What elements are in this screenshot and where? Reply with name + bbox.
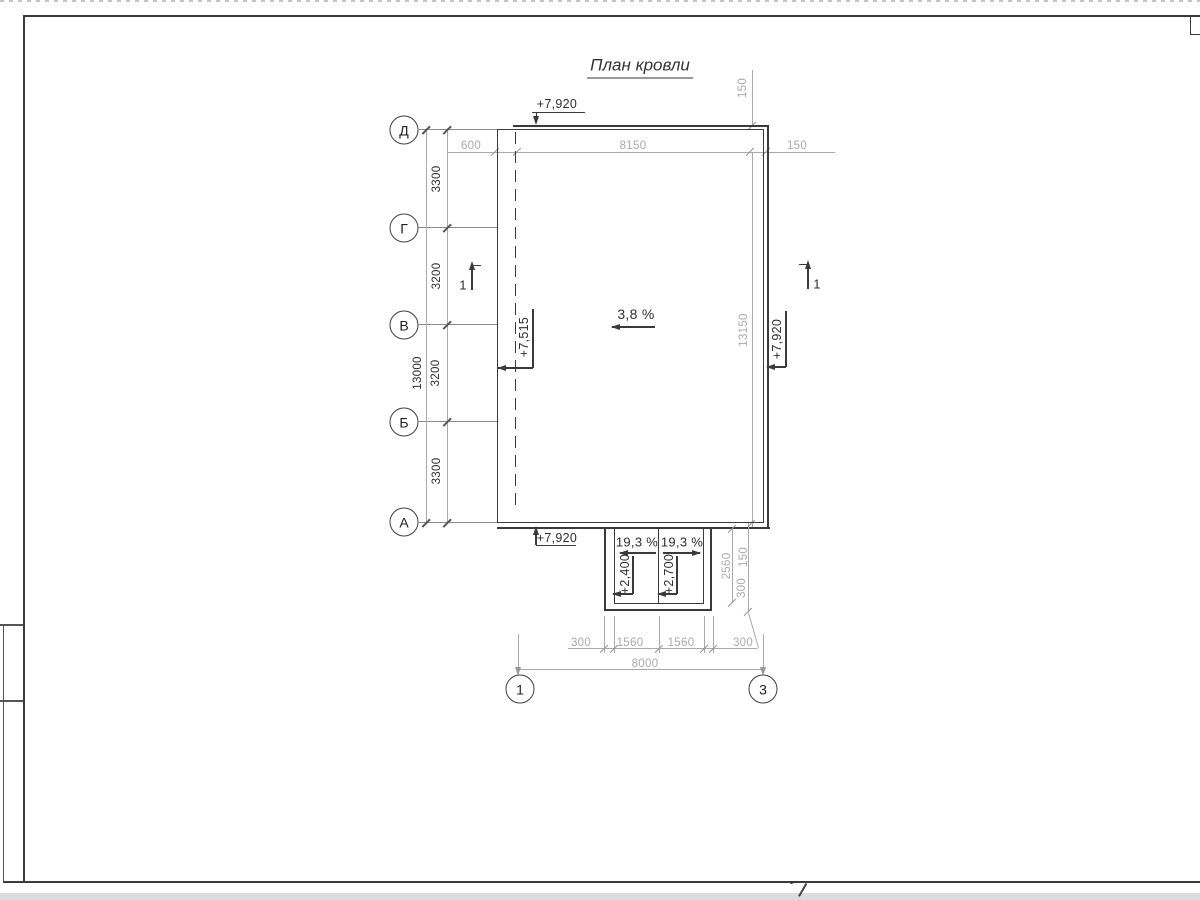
drawing-title: План кровли xyxy=(587,56,693,79)
arrow-up-icon xyxy=(533,526,539,535)
arrow-down-icon xyxy=(533,116,539,125)
dim-label-bottom-1560-a: 1560 xyxy=(617,637,644,649)
left-margin-tick-lower xyxy=(0,700,23,701)
bottom-edge-dot-mark xyxy=(790,881,793,884)
arrow-left-icon xyxy=(766,364,775,370)
dim-label-left-3300-a: 3300 xyxy=(431,166,443,193)
arrow-left-icon xyxy=(657,591,666,597)
arrow-right-icon xyxy=(692,550,701,556)
slope-label-canopy-right: 19,3 % xyxy=(661,535,703,550)
left-margin-tick-upper xyxy=(0,624,23,625)
axis-label-a: А xyxy=(399,514,408,530)
axis-bubble-d: Д xyxy=(390,116,419,145)
dim-label-bottom-total: 8000 xyxy=(632,658,659,670)
axis-bubble-b: Б xyxy=(390,408,419,437)
elevation-label-roof-right: +7,920 xyxy=(770,319,784,359)
axis-line-d xyxy=(418,129,497,130)
elevation-leader-v-canopy-a xyxy=(632,556,633,594)
axis-line-a xyxy=(418,522,497,523)
dim-label-top-150: 150 xyxy=(787,140,807,152)
axis-bubble-3: 3 xyxy=(749,675,778,704)
slope-label-canopy-left: 19,3 % xyxy=(616,535,658,550)
axis-bubble-v: В xyxy=(390,311,419,340)
elevation-label-canopy-a: +2,400 xyxy=(618,554,632,594)
frame-corner-notch-horizontal xyxy=(1190,34,1200,35)
frame-border-top xyxy=(23,15,1200,17)
dim-label-left-3200-a: 3200 xyxy=(431,263,443,290)
dim-label-left-total: 13000 xyxy=(412,356,424,389)
dim-label-left-3200-b: 3200 xyxy=(430,360,442,387)
hidden-wall-dashed-line xyxy=(515,132,517,510)
sheet-top-perforation xyxy=(0,0,1200,2)
dim-label-bottom-300-b: 300 xyxy=(733,637,753,649)
left-margin-line xyxy=(3,625,4,881)
dim-label-canopy-150: 150 xyxy=(738,547,750,567)
axis-bubble-1: 1 xyxy=(506,675,535,704)
dim-label-canopy-2560: 2560 xyxy=(721,553,733,580)
axis-label-b: Б xyxy=(399,414,408,430)
slope-label-main: 3,8 % xyxy=(617,306,654,322)
frame-border-left xyxy=(23,15,25,882)
elevation-underline-roof-bottom xyxy=(536,545,576,546)
arrow-left-icon xyxy=(611,324,620,330)
dim-line-left-chain xyxy=(447,130,448,523)
elevation-underline-roof-top xyxy=(532,112,585,113)
section-mark-left-bar xyxy=(472,265,481,267)
axis-label-g: Г xyxy=(400,220,408,236)
elevation-leader-v-canopy-b xyxy=(676,556,677,594)
axis-label-3: 3 xyxy=(759,681,767,697)
dim-label-bottom-1560-b: 1560 xyxy=(668,637,695,649)
dim-line-left-total xyxy=(426,130,427,523)
section-mark-right-bar xyxy=(799,264,808,266)
arrow-left-icon xyxy=(612,591,621,597)
dim-line-canopy-150-300 xyxy=(748,523,749,612)
elevation-label-roof-bottom: +7,920 xyxy=(537,531,577,545)
axis-line-g xyxy=(418,227,497,228)
frame-border-bottom xyxy=(3,881,1200,883)
drawing-sheet: План кровли Д Г В Б А 3300 3200 3200 330… xyxy=(0,0,1200,900)
dim-label-left-3300-b: 3300 xyxy=(431,458,443,485)
axis-line-b xyxy=(418,421,497,422)
section-label-left: 1 xyxy=(459,278,467,293)
axis-label-d: Д xyxy=(399,122,408,138)
axis-bubble-g: Г xyxy=(390,214,419,243)
dim-label-canopy-300: 300 xyxy=(736,578,748,598)
elevation-leader-v-roof-left xyxy=(532,309,533,368)
axis-label-v: В xyxy=(399,317,408,333)
elevation-label-canopy-b: +2,700 xyxy=(662,554,676,594)
elevation-label-roof-top: +7,920 xyxy=(537,97,577,111)
elevation-leader-v-roof-right xyxy=(785,311,786,367)
section-label-right: 1 xyxy=(813,277,821,292)
axis-label-1: 1 xyxy=(516,681,524,697)
axis-bubble-a: А xyxy=(390,508,419,537)
dim-line-top-right-vertical xyxy=(752,70,753,126)
frame-corner-notch-vertical xyxy=(1190,15,1191,35)
dim-label-top-600: 600 xyxy=(461,140,481,152)
dim-line-bottom-chain xyxy=(568,648,757,649)
elevation-label-roof-left: +7,515 xyxy=(517,317,531,357)
arrow-left-icon xyxy=(497,365,506,371)
axis-line-v xyxy=(418,324,497,325)
sheet-bottom-outside-strip xyxy=(0,893,1200,900)
dim-label-bottom-300-a: 300 xyxy=(571,637,591,649)
dim-label-top-right-150: 150 xyxy=(737,78,749,98)
